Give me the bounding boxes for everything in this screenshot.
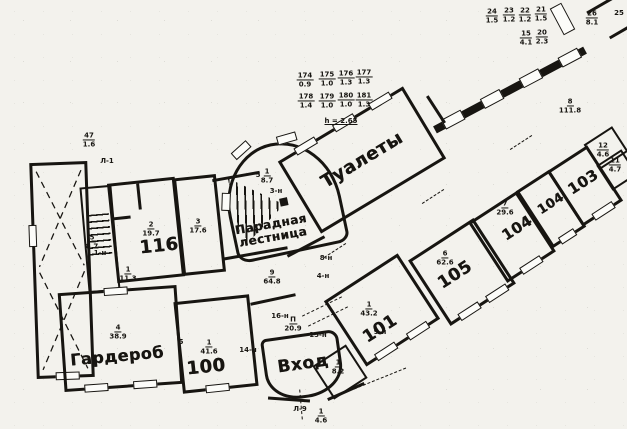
window-marker <box>405 321 429 341</box>
area-fraction: 964.8 <box>263 268 280 285</box>
area-fraction: 211.5 <box>535 5 547 22</box>
reference-tag: 9-н <box>374 328 387 336</box>
area-fraction: 662.6 <box>436 249 453 266</box>
fraction-denominator: 4.1 <box>520 39 532 47</box>
area-fraction: 1751.0 <box>319 70 336 87</box>
reference-tag: 25 <box>614 9 624 17</box>
window-marker <box>133 380 157 390</box>
fraction-denominator: 1.4 <box>300 102 312 110</box>
fraction-denominator: 1.3 <box>358 78 370 86</box>
fraction-numerator: 9 <box>269 268 276 277</box>
fraction-numerator: 11 <box>609 156 621 165</box>
area-fraction: 317.6 <box>189 217 206 234</box>
window-marker <box>519 255 543 275</box>
window-marker <box>276 131 298 145</box>
fraction-denominator: 38.9 <box>109 333 126 341</box>
area-fraction: 471.6 <box>83 131 95 148</box>
window-marker <box>591 201 615 221</box>
area-fraction: 219.7 <box>142 220 159 237</box>
fraction-denominator: 64.8 <box>263 278 280 286</box>
fraction-denominator: 0.9 <box>299 81 311 89</box>
reference-tag: h = 2.65 <box>325 117 358 125</box>
area-fraction: 1740.9 <box>297 71 314 88</box>
fraction-numerator: 47 <box>83 131 95 140</box>
outer-wall-segment <box>433 47 587 134</box>
area-fraction: 124.6 <box>597 141 609 158</box>
window-marker <box>205 383 230 393</box>
area-fraction: 1801.0 <box>338 91 355 108</box>
window-marker <box>457 302 481 322</box>
fraction-denominator: 20.9 <box>284 325 301 333</box>
fraction-numerator: 22 <box>519 6 531 15</box>
area-fraction: 18.7 <box>261 167 273 184</box>
window-marker <box>374 342 398 362</box>
area-fraction: 221.2 <box>519 6 531 23</box>
fraction-numerator: 1 <box>206 338 213 347</box>
wall-segment <box>426 95 446 123</box>
window-marker <box>550 3 576 36</box>
fraction-numerator: 8 <box>567 97 574 106</box>
fraction-numerator: 7 <box>502 199 509 208</box>
reference-tag: Л-1 <box>100 157 114 165</box>
area-fraction: 58.7 <box>86 233 98 250</box>
window-marker <box>221 193 231 211</box>
fraction-denominator: 8.7 <box>261 177 273 185</box>
fraction-denominator: 8.1 <box>586 19 598 27</box>
fraction-denominator: 1.2 <box>503 16 515 24</box>
area-fraction: 14.6 <box>315 407 327 424</box>
fraction-denominator: 11.3 <box>119 275 136 283</box>
fraction-numerator: 2 <box>148 220 155 229</box>
fraction-numerator: 179 <box>319 92 336 101</box>
fraction-denominator: 4.6 <box>597 151 609 159</box>
fraction-denominator: 19.7 <box>142 230 159 238</box>
fraction-denominator: 4.6 <box>315 417 327 425</box>
fraction-denominator: 1.2 <box>519 16 531 24</box>
area-fraction: 268.1 <box>586 9 598 26</box>
window-marker <box>28 225 37 247</box>
area-fraction: 111.3 <box>119 265 136 282</box>
window-marker <box>558 228 577 245</box>
area-fraction: 729.6 <box>496 199 513 216</box>
partition-stub <box>113 216 131 221</box>
area-fraction: 202.3 <box>536 28 548 45</box>
fraction-numerator: 6 <box>442 249 449 258</box>
fraction-denominator: 17.6 <box>189 227 206 235</box>
fraction-numerator: 178 <box>298 92 315 101</box>
fraction-numerator: 5 <box>89 233 96 242</box>
window-marker <box>84 383 108 393</box>
fraction-numerator: 15 <box>520 29 532 38</box>
wall-segment <box>250 293 296 305</box>
window-marker <box>231 140 252 160</box>
reference-tag: 5 <box>256 171 261 179</box>
fraction-numerator: 12 <box>597 141 609 150</box>
fraction-numerator: 20 <box>536 28 548 37</box>
window-marker <box>103 286 127 296</box>
area-fraction: 438.9 <box>109 323 126 340</box>
window-marker <box>480 89 505 109</box>
area-fraction: 241.5 <box>486 7 498 24</box>
fraction-denominator: 1.3 <box>340 79 352 87</box>
fraction-denominator: 1.0 <box>321 102 333 110</box>
fraction-numerator: 1 <box>335 358 342 367</box>
reference-tag: 16-н <box>271 312 288 320</box>
wall-segment <box>609 24 627 40</box>
reference-tag: 14-н <box>239 346 256 354</box>
window-marker <box>519 68 544 88</box>
fraction-numerator: 174 <box>297 71 314 80</box>
area-fraction: 231.2 <box>503 6 515 23</box>
area-fraction: 1781.4 <box>298 92 315 109</box>
fraction-denominator: 2.3 <box>536 38 548 46</box>
area-fraction: 1761.3 <box>338 69 355 86</box>
area-fraction: 1811.3 <box>356 91 373 108</box>
fraction-denominator: 29.6 <box>496 209 513 217</box>
reference-tag: 3-н <box>270 187 283 195</box>
fraction-numerator: 176 <box>338 69 355 78</box>
fraction-numerator: 21 <box>535 5 547 14</box>
area-fraction: 18.2 <box>332 358 344 375</box>
reference-tag: 1-н <box>94 249 107 257</box>
fraction-numerator: 1 <box>366 300 373 309</box>
area-fraction: 141.6 <box>200 338 217 355</box>
fraction-denominator: 41.6 <box>200 348 217 356</box>
area-fraction: 8111.8 <box>559 97 581 114</box>
area-fraction: 1771.3 <box>356 68 373 85</box>
window-marker <box>558 48 583 68</box>
fraction-numerator: 1 <box>125 265 132 274</box>
window-marker <box>485 283 509 303</box>
fraction-denominator: 1.3 <box>358 101 370 109</box>
fraction-denominator: 43.2 <box>360 310 377 318</box>
fraction-denominator: 1.6 <box>83 141 95 149</box>
reference-tag: 8-н <box>320 254 333 262</box>
door-opening-dash <box>510 135 532 150</box>
fraction-numerator: 24 <box>486 7 498 16</box>
fraction-denominator: 1.5 <box>486 17 498 25</box>
door-opening-dash <box>422 189 444 204</box>
fraction-numerator: 1 <box>264 167 271 176</box>
fraction-numerator: 181 <box>356 91 373 100</box>
partition-stub <box>136 183 142 209</box>
fraction-denominator: 1.0 <box>321 80 333 88</box>
area-fraction: 143.2 <box>360 300 377 317</box>
fraction-denominator: 111.8 <box>559 107 581 115</box>
reference-tag: Л-9 <box>293 405 307 413</box>
fraction-numerator: 175 <box>319 70 336 79</box>
fraction-numerator: 180 <box>338 91 355 100</box>
fraction-numerator: 26 <box>586 9 598 18</box>
fraction-numerator: 177 <box>356 68 373 77</box>
fraction-numerator: 23 <box>503 6 515 15</box>
staircase-newel-post <box>279 197 288 206</box>
fraction-denominator: 4.7 <box>609 166 621 174</box>
area-fraction: 154.1 <box>520 29 532 46</box>
fraction-denominator: 8.2 <box>332 368 344 376</box>
fraction-denominator: 1.0 <box>340 101 352 109</box>
fraction-numerator: 4 <box>115 323 122 332</box>
area-fraction: 114.7 <box>609 156 621 173</box>
floor-plan-canvas: Туалеты Парадная лестница Гардероб Вход … <box>0 0 627 429</box>
reference-tag: 5 <box>179 338 184 346</box>
fraction-numerator: П <box>289 315 297 324</box>
reference-tag: 4-н <box>317 272 330 280</box>
room-label-100: 100 <box>185 355 226 380</box>
area-fraction: 1791.0 <box>319 92 336 109</box>
fraction-numerator: 1 <box>318 407 325 416</box>
fraction-denominator: 62.6 <box>436 259 453 267</box>
fraction-numerator: 3 <box>195 217 202 226</box>
reference-tag: 15-н <box>309 331 326 339</box>
fraction-denominator: 1.5 <box>535 15 547 23</box>
